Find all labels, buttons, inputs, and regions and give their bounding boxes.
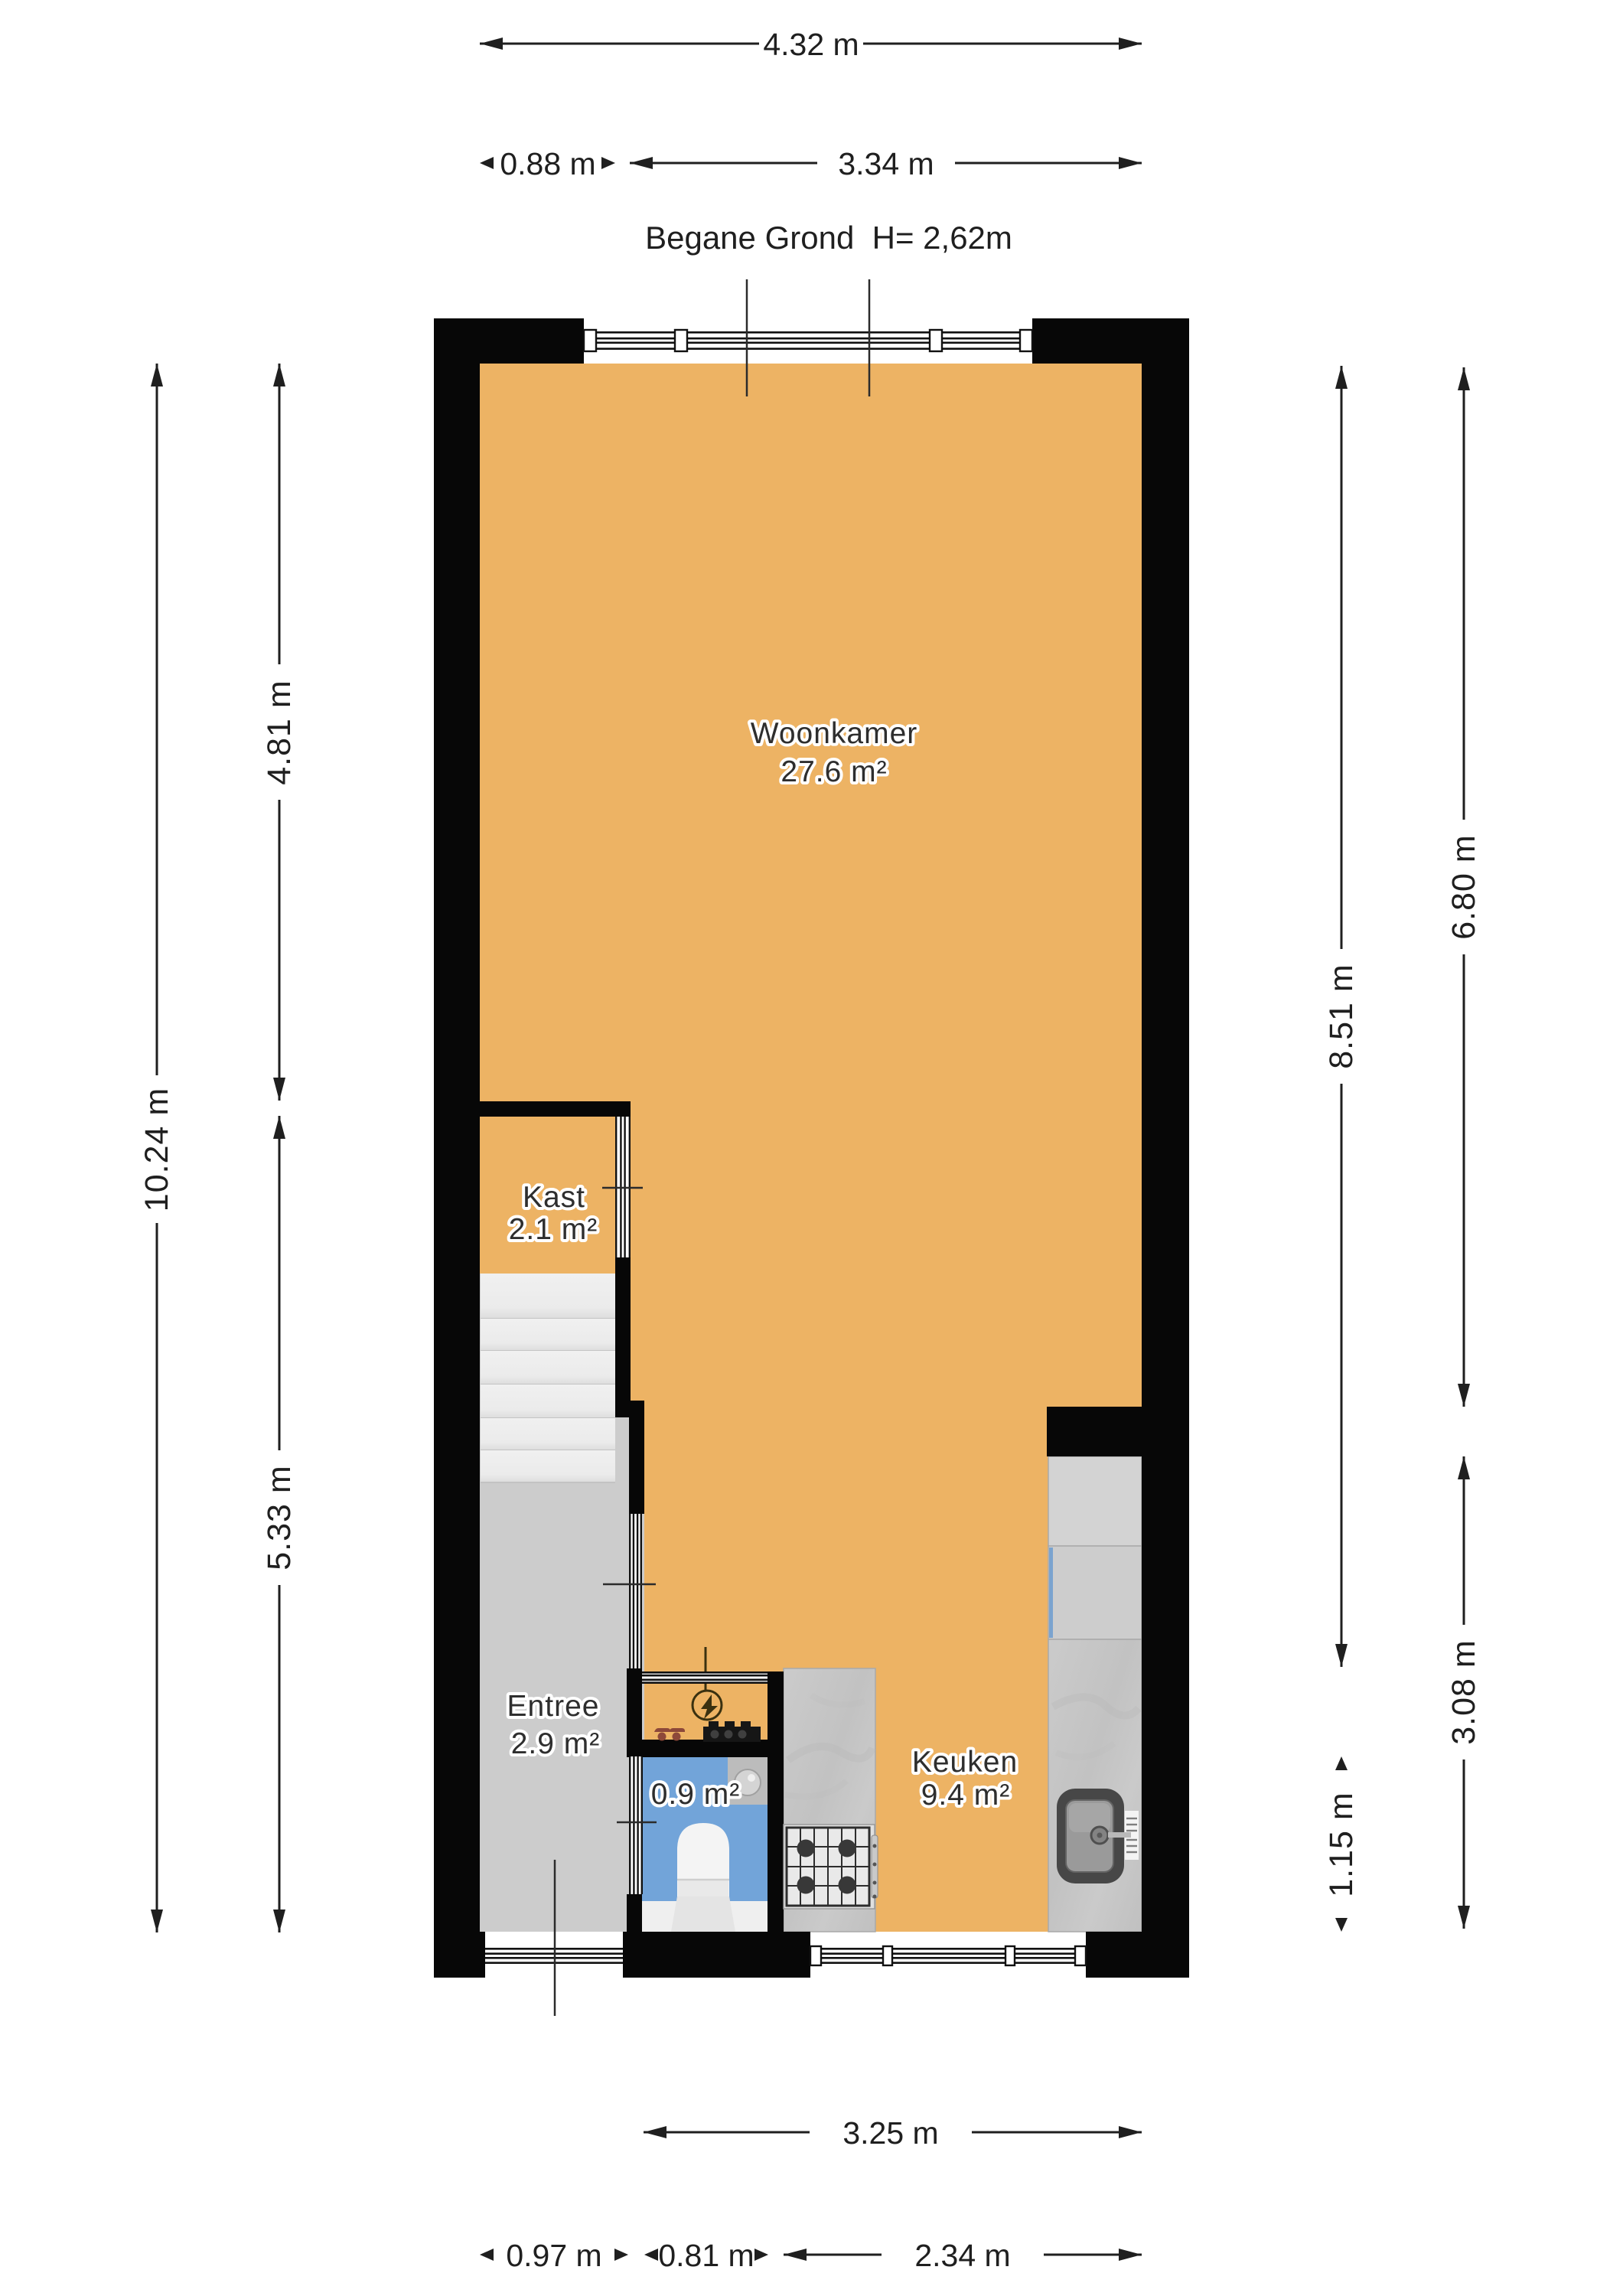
- svg-text:9.4 m²: 9.4 m²: [921, 1779, 1011, 1812]
- svg-text:3.34 m: 3.34 m: [838, 146, 934, 181]
- svg-text:3.08 m: 3.08 m: [1445, 1639, 1482, 1744]
- svg-text:2.9 m²: 2.9 m²: [511, 1727, 601, 1760]
- svg-text:6.80 m: 6.80 m: [1445, 834, 1482, 939]
- svg-text:3.25 m: 3.25 m: [842, 2115, 938, 2151]
- svg-text:2.34 m: 2.34 m: [914, 2238, 1010, 2273]
- svg-text:2.1 m²: 2.1 m²: [509, 1213, 598, 1246]
- svg-text:0.81 m: 0.81 m: [658, 2238, 754, 2273]
- svg-text:8.51 m: 8.51 m: [1323, 964, 1360, 1068]
- svg-text:4.81 m: 4.81 m: [261, 680, 298, 784]
- svg-text:10.24 m: 10.24 m: [139, 1088, 175, 1212]
- svg-text:Kast: Kast: [523, 1181, 585, 1214]
- svg-text:0.97 m: 0.97 m: [506, 2238, 601, 2273]
- svg-text:0.9 m²: 0.9 m²: [651, 1778, 741, 1811]
- svg-text:5.33 m: 5.33 m: [261, 1465, 298, 1570]
- svg-text:4.32 m: 4.32 m: [763, 27, 859, 62]
- svg-text:0.88 m: 0.88 m: [500, 146, 595, 181]
- svg-text:Begane Grond H= 2,62m: Begane Grond H= 2,62m: [645, 220, 1012, 256]
- svg-text:Woonkamer: Woonkamer: [751, 717, 918, 750]
- svg-text:Keuken: Keuken: [912, 1746, 1018, 1779]
- svg-text:1.15 m: 1.15 m: [1323, 1792, 1360, 1896]
- svg-text:Entree: Entree: [507, 1690, 600, 1723]
- svg-text:27.6 m²: 27.6 m²: [781, 755, 887, 788]
